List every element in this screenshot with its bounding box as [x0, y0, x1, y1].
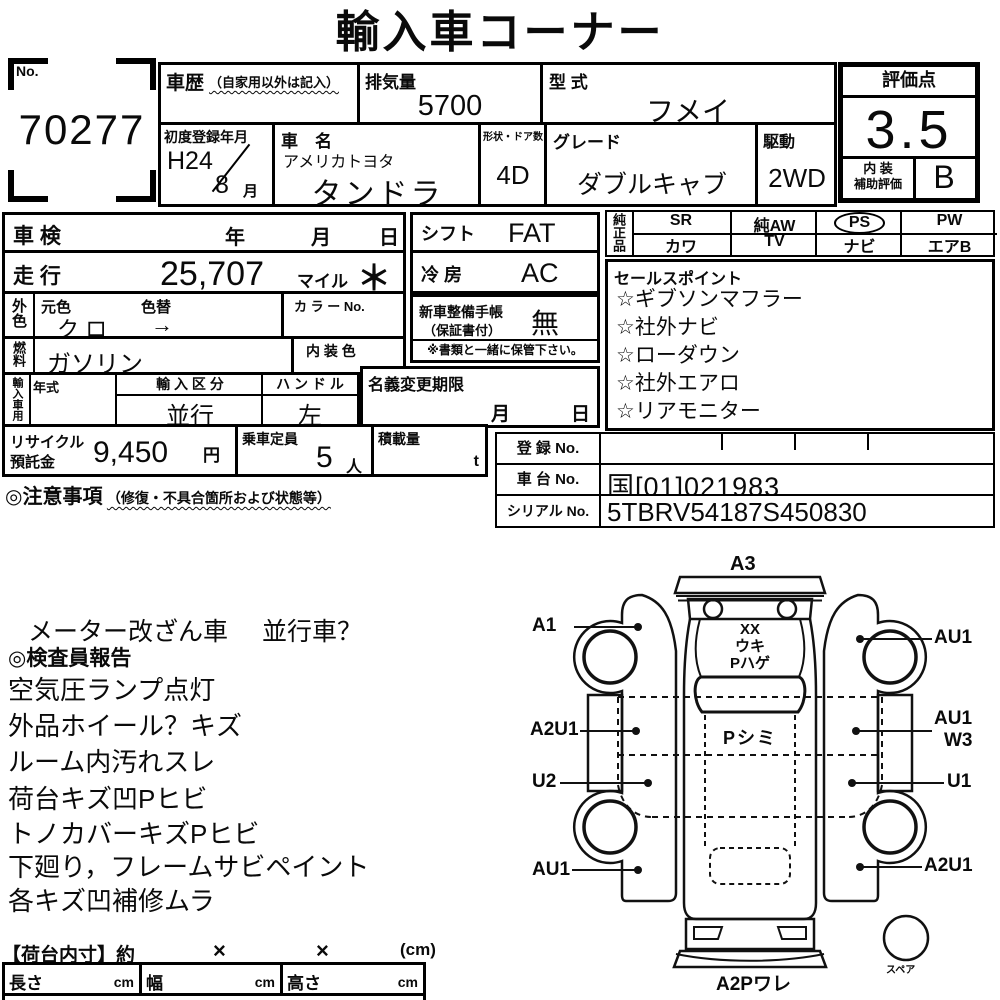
- interior-label-top: 内 装: [843, 161, 913, 177]
- equip-aw: 純AW: [730, 212, 817, 235]
- rating-score: 3.5: [843, 98, 975, 164]
- diagram-label-a3: A3: [730, 553, 756, 576]
- serial-no-value: 5TBRV54187S450830: [607, 497, 867, 528]
- diagram-label-a2u1-bottom: A2U1: [924, 855, 973, 877]
- mileage-label: 走 行: [13, 260, 61, 290]
- shift-label: シフト: [421, 220, 475, 246]
- bed-dim-times: ×: [213, 938, 226, 964]
- fuel-side-label: 燃料: [5, 339, 35, 372]
- sales-point-item: ☆ローダウン: [616, 342, 803, 370]
- import-use-label: 輸入車用: [11, 377, 22, 421]
- shift-value: FAT: [508, 218, 556, 249]
- diagram-label-u1: U1: [947, 771, 971, 793]
- aircon-cell: 冷 房 AC: [410, 250, 600, 294]
- report-item: 空気圧ランプ点灯: [8, 670, 215, 707]
- lot-number-label: No.: [16, 63, 39, 79]
- report-item: ルーム内汚れスレ: [8, 742, 215, 779]
- bed-height-label: 高さ: [287, 969, 321, 994]
- equip-airb: エアB: [900, 233, 997, 255]
- fuel-row: 燃料 ガソリン 内 装 色: [2, 336, 406, 375]
- aircon-value: AC: [521, 258, 559, 289]
- load-capacity-cell: 積載量 t: [371, 424, 488, 477]
- corner-mark: [116, 58, 156, 90]
- chassis-no-row: 車 台 No. 国[01]021983: [495, 463, 995, 497]
- drive-label: 駆動: [763, 128, 795, 152]
- reg-divider: [794, 434, 796, 450]
- bed-length-unit: cm: [114, 974, 134, 990]
- history-cell: 車歴 （自家用以外は記入）: [158, 62, 360, 125]
- import-use-row: 輸入車用 年式 輸 入 区 分 並行 ハ ン ド ル 左: [2, 372, 360, 427]
- history-note: （自家用以外は記入）: [209, 72, 339, 91]
- chassis-no-label: 車 台 No.: [497, 465, 601, 495]
- exterior-color-side-label: 外色: [5, 294, 35, 336]
- lot-number-value: 70277: [8, 106, 156, 154]
- diagram-label-au1-top: AU1: [934, 627, 972, 649]
- sales-point-item: ☆リアモニター: [616, 398, 803, 426]
- model-year-label: 年式: [33, 377, 59, 396]
- diagram-label-au1-mid: AU1: [934, 708, 973, 730]
- displacement-cell: 排気量 5700: [357, 62, 543, 125]
- exterior-color-row: 外色 元色 色替 ク ロ → カ ラ ー No.: [2, 291, 406, 339]
- diagram-label-a2p: A2Pワレ: [716, 969, 791, 996]
- load-capacity-label: 積載量: [378, 429, 420, 449]
- parallel-note: 並行車？: [262, 612, 362, 648]
- sales-point-item: ☆社外ナビ: [616, 314, 803, 342]
- seating-value: 5: [316, 441, 333, 475]
- caution-line: ◎注意事項 （修復・不具合箇所および状態等）: [5, 480, 331, 509]
- displacement-value: 5700: [360, 90, 540, 123]
- service-book-label1: 新車整備手帳: [419, 302, 503, 322]
- hood-note-line1: XX: [705, 621, 795, 638]
- report-item: 外品ホイール？キズ: [8, 706, 242, 743]
- model-code-cell: 型 式 フメイ: [540, 62, 837, 125]
- service-book-label2: （保証書付）: [423, 320, 501, 339]
- diagram-label-au1-w3: AU1 W3: [934, 708, 973, 752]
- sales-points-box: セールスポイント ☆ギブソンマフラー ☆社外ナビ ☆ローダウン ☆社外エアロ ☆…: [605, 259, 995, 431]
- recycle-label2: 預託金: [10, 451, 55, 472]
- recycle-label1: リサイクル: [10, 431, 84, 452]
- caution-note: （修復・不具合箇所および状態等）: [107, 490, 331, 506]
- recycle-deposit-cell: リサイクル 預託金 9,450 円: [2, 424, 238, 477]
- page-title: 輸入車コーナー: [0, 0, 1000, 60]
- first-registration-month: 8: [215, 171, 229, 200]
- first-registration-year: H24: [167, 147, 213, 176]
- equip-tv: TV: [730, 233, 817, 255]
- diagram-label-a2u1-left: A2U1: [530, 719, 579, 741]
- interior-rating-row: 内 装 補助評価 B: [843, 156, 975, 198]
- mileage-row: 走 行 25,707 マイル ＊: [2, 250, 406, 294]
- serial-no-label: シリアル No.: [497, 496, 601, 526]
- sales-point-item: ☆社外エアロ: [616, 370, 803, 398]
- reg-no-row: 登 録 No.: [495, 432, 995, 466]
- corner-mark: [116, 170, 156, 202]
- genuine-parts-side-label: 純正品: [607, 212, 634, 255]
- interior-grade: B: [913, 159, 975, 198]
- diagram-label-u2: U2: [532, 771, 556, 793]
- registration-block: 登 録 No. 車 台 No. 国[01]021983 シリアル No. 5TB…: [495, 432, 995, 528]
- bed-length-label: 長さ: [9, 969, 43, 994]
- mileage-value: 25,707: [160, 255, 264, 294]
- grade-value: ダブルキャブ: [547, 165, 757, 201]
- aircon-label: 冷 房: [421, 261, 462, 287]
- seating-unit: 人: [346, 453, 362, 477]
- bed-height-cell: 高さ cm: [280, 962, 426, 996]
- diagram-label-a1: A1: [532, 615, 556, 637]
- diagram-label-spare: スペア: [886, 961, 915, 976]
- corner-mark: [8, 170, 48, 202]
- equip-pw: PW: [900, 212, 997, 235]
- body-doors-cell: 形状・ドア数 4D: [478, 122, 547, 207]
- reg-no-label: 登 録 No.: [497, 434, 601, 464]
- seating-label: 乗車定員: [242, 429, 298, 449]
- bed-width-label: 幅: [146, 969, 163, 994]
- hood-note-line3: Pハゲ: [705, 655, 795, 672]
- interior-label-bottom: 補助評価: [843, 177, 913, 191]
- first-registration-label: 初度登録年月: [164, 127, 248, 147]
- diagram-roof-note: Pシミ: [710, 724, 790, 750]
- repaint-arrow: →: [151, 312, 173, 338]
- import-division-cell: 輸 入 区 分 並行: [115, 375, 263, 424]
- bed-height-unit: cm: [398, 974, 418, 990]
- handle-label: ハ ン ド ル: [263, 375, 357, 396]
- fuel-label: 燃料: [12, 341, 25, 367]
- recycle-unit: 円: [203, 441, 220, 466]
- handle-cell: ハ ン ド ル 左: [261, 375, 357, 424]
- report-item: 下廻り，フレームサビペイント: [8, 847, 369, 884]
- name-change-day-unit: 日: [571, 399, 590, 426]
- hood-note-line2: ウキ: [705, 638, 795, 655]
- report-item: トノカバーキズPヒビ: [8, 814, 259, 851]
- exterior-color-label: 外色: [11, 298, 26, 328]
- diagram-label-au1-bottom: AU1: [532, 859, 570, 881]
- name-change-label: 名義変更期限: [368, 371, 464, 395]
- seating-cell: 乗車定員 5 人: [235, 424, 374, 477]
- interior-rating-label: 内 装 補助評価: [843, 159, 916, 198]
- import-use-side-label: 輸入車用: [5, 375, 31, 424]
- rating-box: 評価点 3.5 内 装 補助評価 B: [838, 62, 980, 203]
- car-name-cell: 車 名 アメリカトヨタ タンドラ: [272, 122, 481, 207]
- report-item: 各キズ凹補修ムラ: [8, 881, 215, 918]
- name-change-month-unit: 月: [491, 399, 510, 426]
- shaken-row: 車 検 年 月 日: [2, 212, 406, 253]
- shaken-label: 車 検: [13, 220, 61, 250]
- diagram-hood-note: XX ウキ Pハゲ: [705, 621, 795, 672]
- shaken-day-unit: 日: [379, 221, 399, 250]
- name-change-cell: 名義変更期限 月 日: [360, 366, 600, 428]
- recycle-value: 9,450: [93, 436, 168, 470]
- service-book-note: ※書類と一緒に保管下さい。: [413, 339, 597, 360]
- damage-diagram: A3 A1 AU1 A2U1 AU1 W3 U2 U1 AU1 A2U1 A2P…: [530, 555, 1000, 1000]
- bed-dim-partial-row: [2, 993, 426, 1000]
- drive-cell: 駆動 2WD: [755, 122, 837, 207]
- auction-sheet: 輸入車コーナー No. 70277 車歴 （自家用以外は記入） 排気量 5700…: [0, 0, 1000, 1000]
- report-item: 荷台キズ凹Pヒビ: [8, 779, 207, 816]
- first-registration-cell: 初度登録年月 H24 8 月: [158, 122, 275, 207]
- service-book-cell: 新車整備手帳 （保証書付） 無 ※書類と一緒に保管下さい。: [410, 294, 600, 363]
- equip-ps-circled: PS: [834, 212, 885, 234]
- bed-length-cell: 長さ cm: [2, 962, 142, 996]
- mileage-unit: マイル: [297, 267, 348, 292]
- load-capacity-unit: t: [474, 453, 479, 471]
- interior-color-label: 内 装 色: [306, 341, 356, 361]
- equip-ps: PS: [815, 212, 902, 235]
- bed-dim-times: ×: [316, 938, 329, 964]
- service-book-value: 無: [531, 302, 559, 342]
- reg-divider: [867, 434, 869, 450]
- model-year-cell: 年式: [29, 375, 115, 424]
- genuine-parts-grid: 純正品 SR 純AW PS PW カワ TV ナビ エアB: [605, 210, 995, 257]
- color-no-cell: カ ラ ー No.: [281, 294, 403, 336]
- shaken-month-unit: 月: [311, 221, 331, 250]
- caution-label: ◎注意事項: [5, 486, 102, 508]
- sales-point-item: ☆ギブソンマフラー: [616, 286, 803, 314]
- lot-number-box: No. 70277: [8, 58, 156, 202]
- equip-sr: SR: [632, 212, 730, 235]
- history-label: 車歴: [166, 68, 204, 95]
- genuine-parts-label: 純正品: [612, 213, 625, 252]
- shaken-year-unit: 年: [225, 221, 245, 250]
- body-doors-value: 4D: [481, 160, 545, 191]
- diagram-label-w3: W3: [934, 730, 973, 752]
- equip-navi: ナビ: [815, 233, 902, 255]
- grade-cell: グレード ダブルキャブ: [544, 122, 758, 207]
- grade-label: グレード: [553, 128, 621, 153]
- bed-width-cell: 幅 cm: [139, 962, 283, 996]
- drive-value: 2WD: [758, 163, 836, 194]
- equip-kawa: カワ: [632, 233, 730, 255]
- car-model: タンドラ: [275, 169, 480, 213]
- body-doors-label: 形状・ドア数: [483, 128, 543, 143]
- rating-label: 評価点: [843, 67, 975, 98]
- import-division-label: 輸 入 区 分: [117, 375, 263, 396]
- color-no-label: カ ラ ー No.: [294, 296, 365, 315]
- first-registration-month-unit: 月: [243, 180, 258, 201]
- reg-divider: [721, 434, 723, 450]
- bed-dim-unit-note: (cm): [400, 940, 436, 960]
- shift-cell: シフト FAT: [410, 212, 600, 253]
- inspector-report-header: ◎検査員報告: [8, 642, 131, 672]
- bed-width-unit: cm: [255, 974, 275, 990]
- serial-no-row: シリアル No. 5TBRV54187S450830: [495, 494, 995, 528]
